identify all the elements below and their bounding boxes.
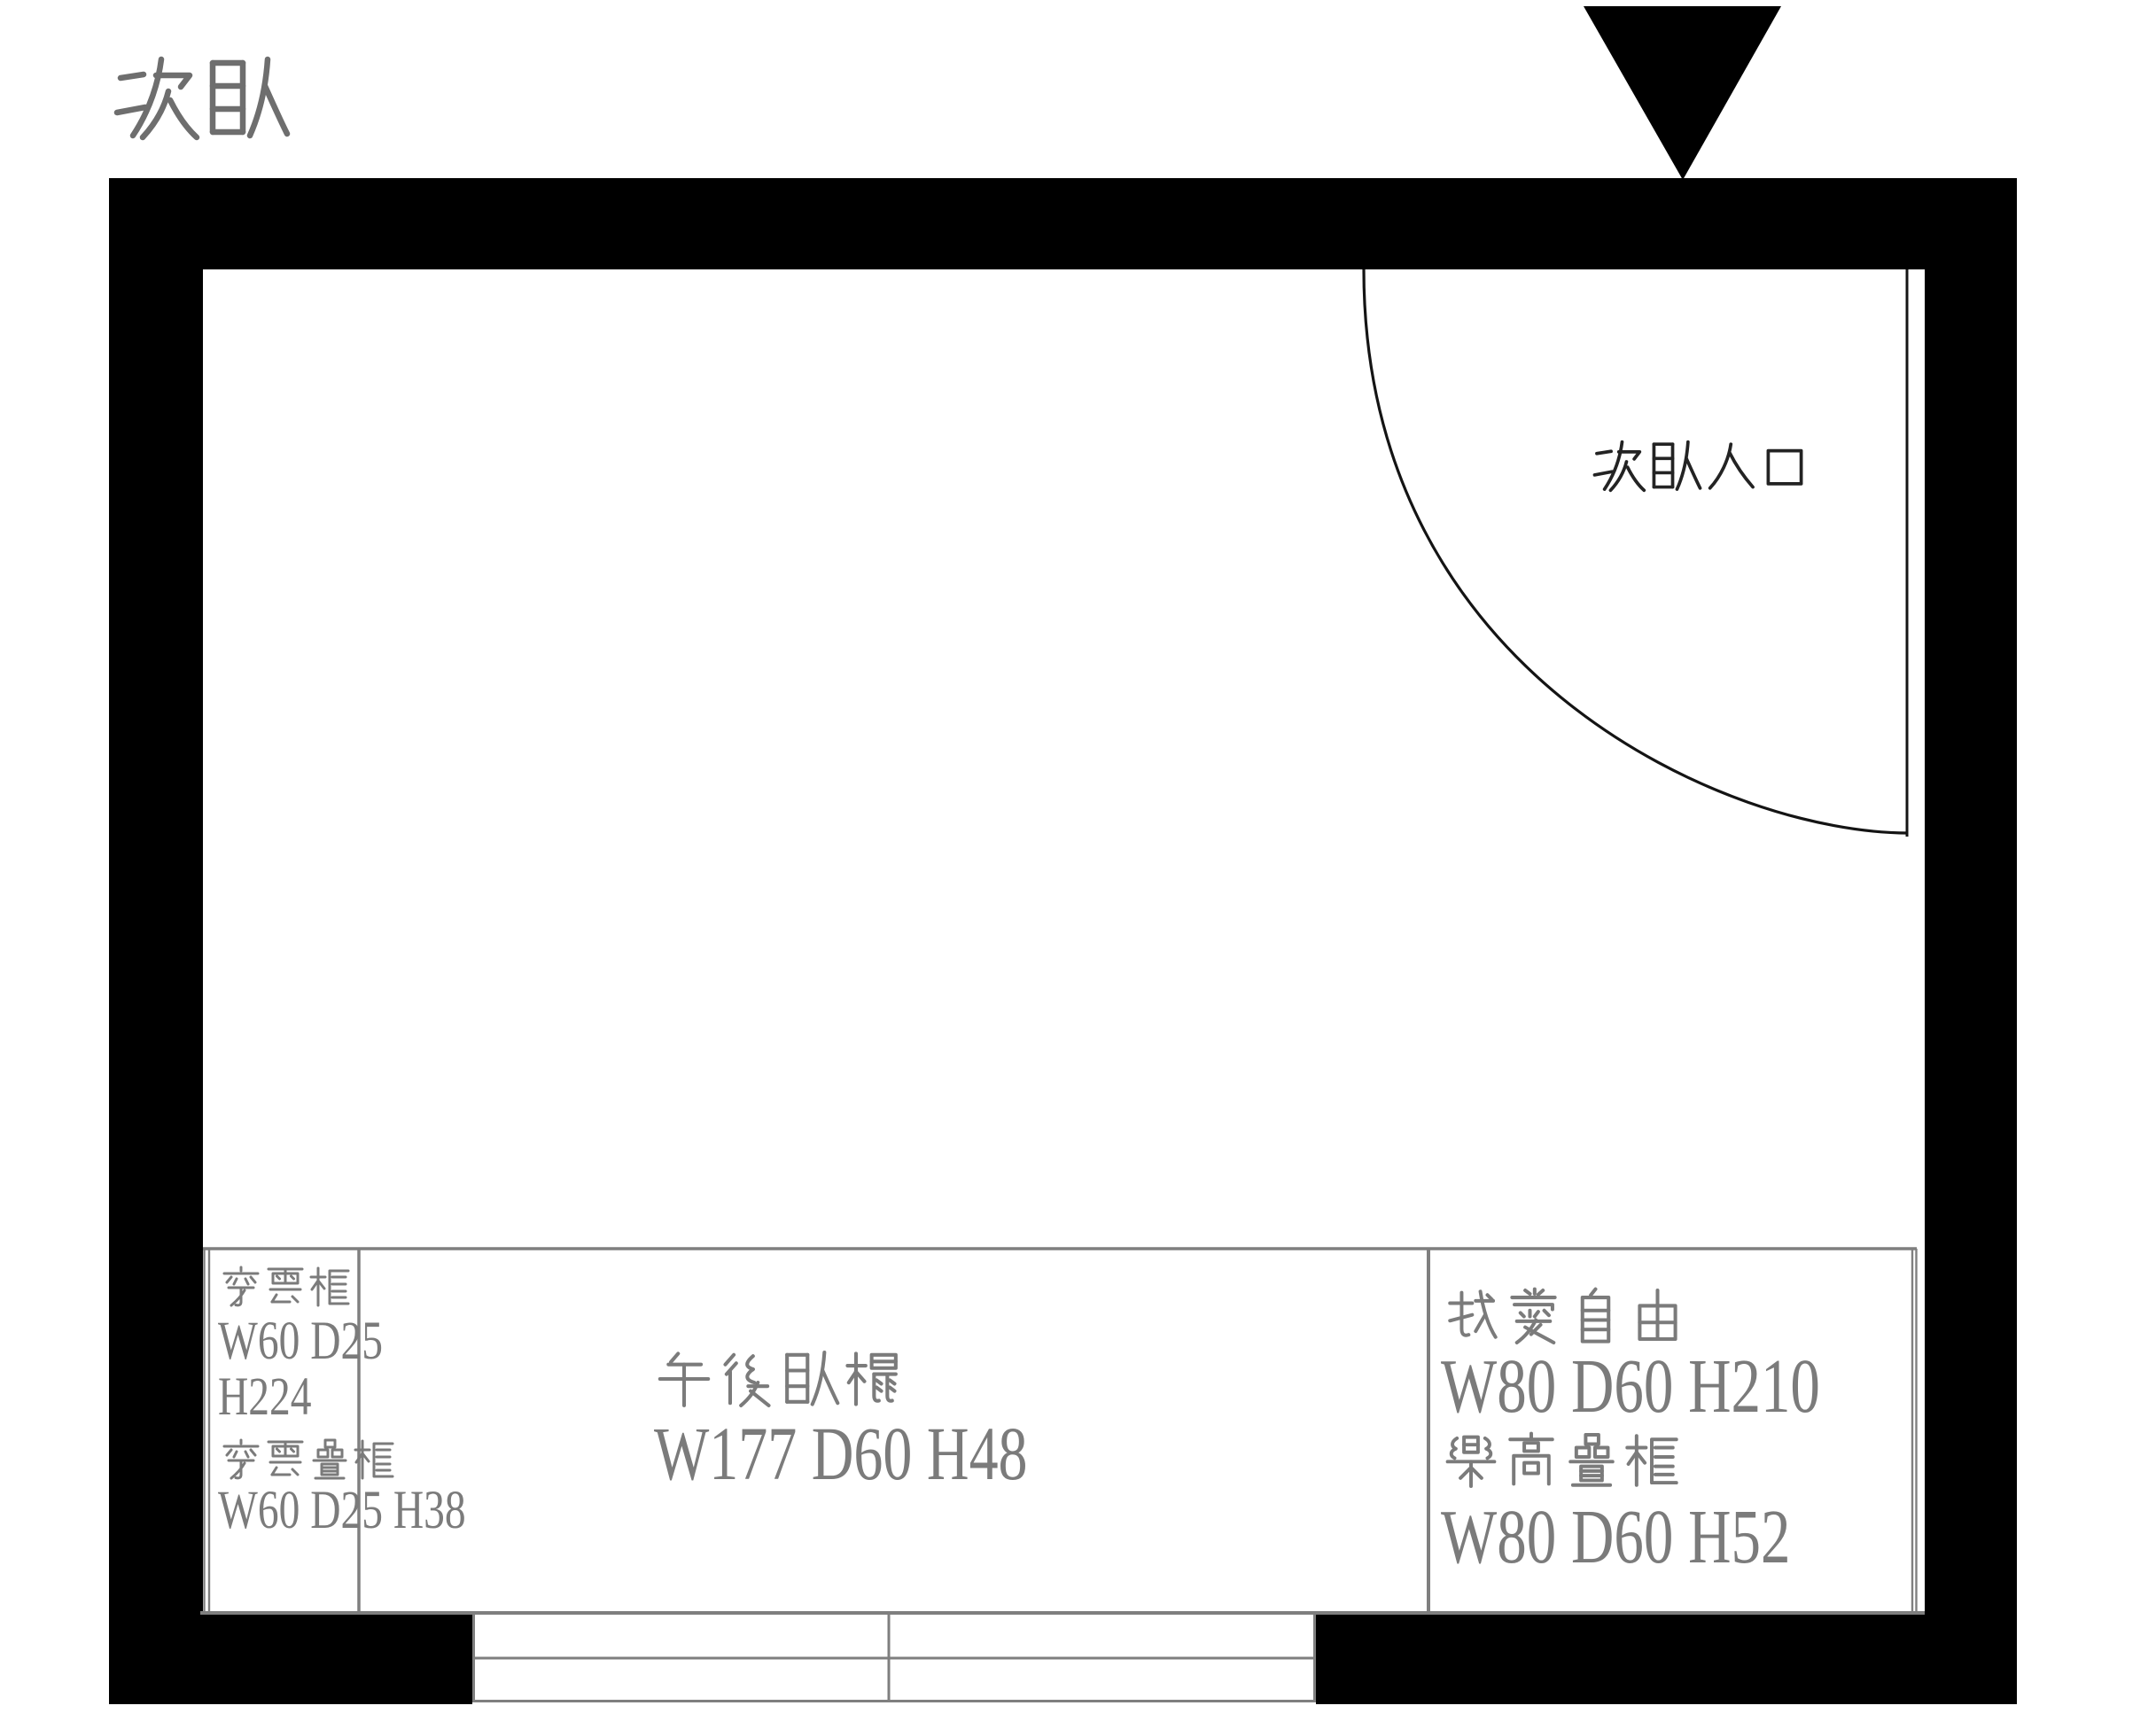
svg-text:W60 D25 H38: W60 D25 H38 <box>218 1479 466 1539</box>
svg-text:W177 D60 H48: W177 D60 H48 <box>654 1412 1028 1496</box>
svg-text:W80 D60 H52: W80 D60 H52 <box>1441 1494 1790 1579</box>
svg-text:W80 D60 H210: W80 D60 H210 <box>1441 1343 1820 1429</box>
svg-text:W60 D25: W60 D25 <box>218 1310 383 1370</box>
svg-text:H224: H224 <box>218 1366 312 1426</box>
